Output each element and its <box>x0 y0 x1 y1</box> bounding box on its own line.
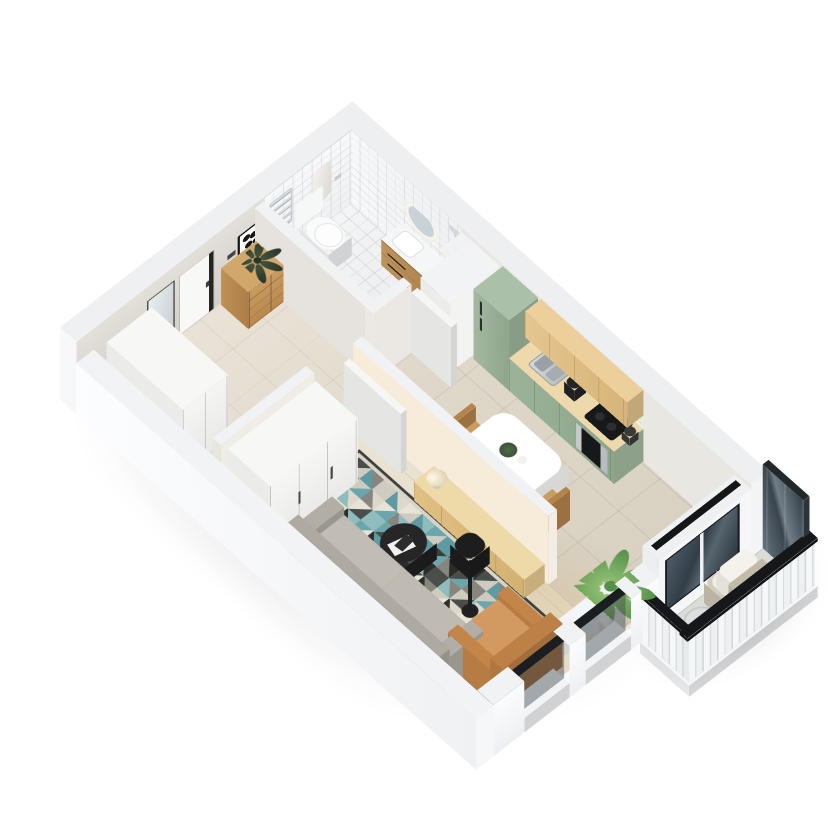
wardrobe-handle-1 <box>298 491 300 505</box>
tv-partition-wall-front <box>548 510 557 585</box>
living-room-door-leaf-front <box>401 409 407 474</box>
page-background <box>0 0 828 828</box>
fridge-handle-upper <box>480 301 482 316</box>
fridge-handle-lower <box>480 317 482 331</box>
bathroom-door-leaf-front <box>451 323 457 388</box>
wardrobe-handle-2 <box>331 466 333 480</box>
balcony-door-mullion <box>700 532 704 586</box>
